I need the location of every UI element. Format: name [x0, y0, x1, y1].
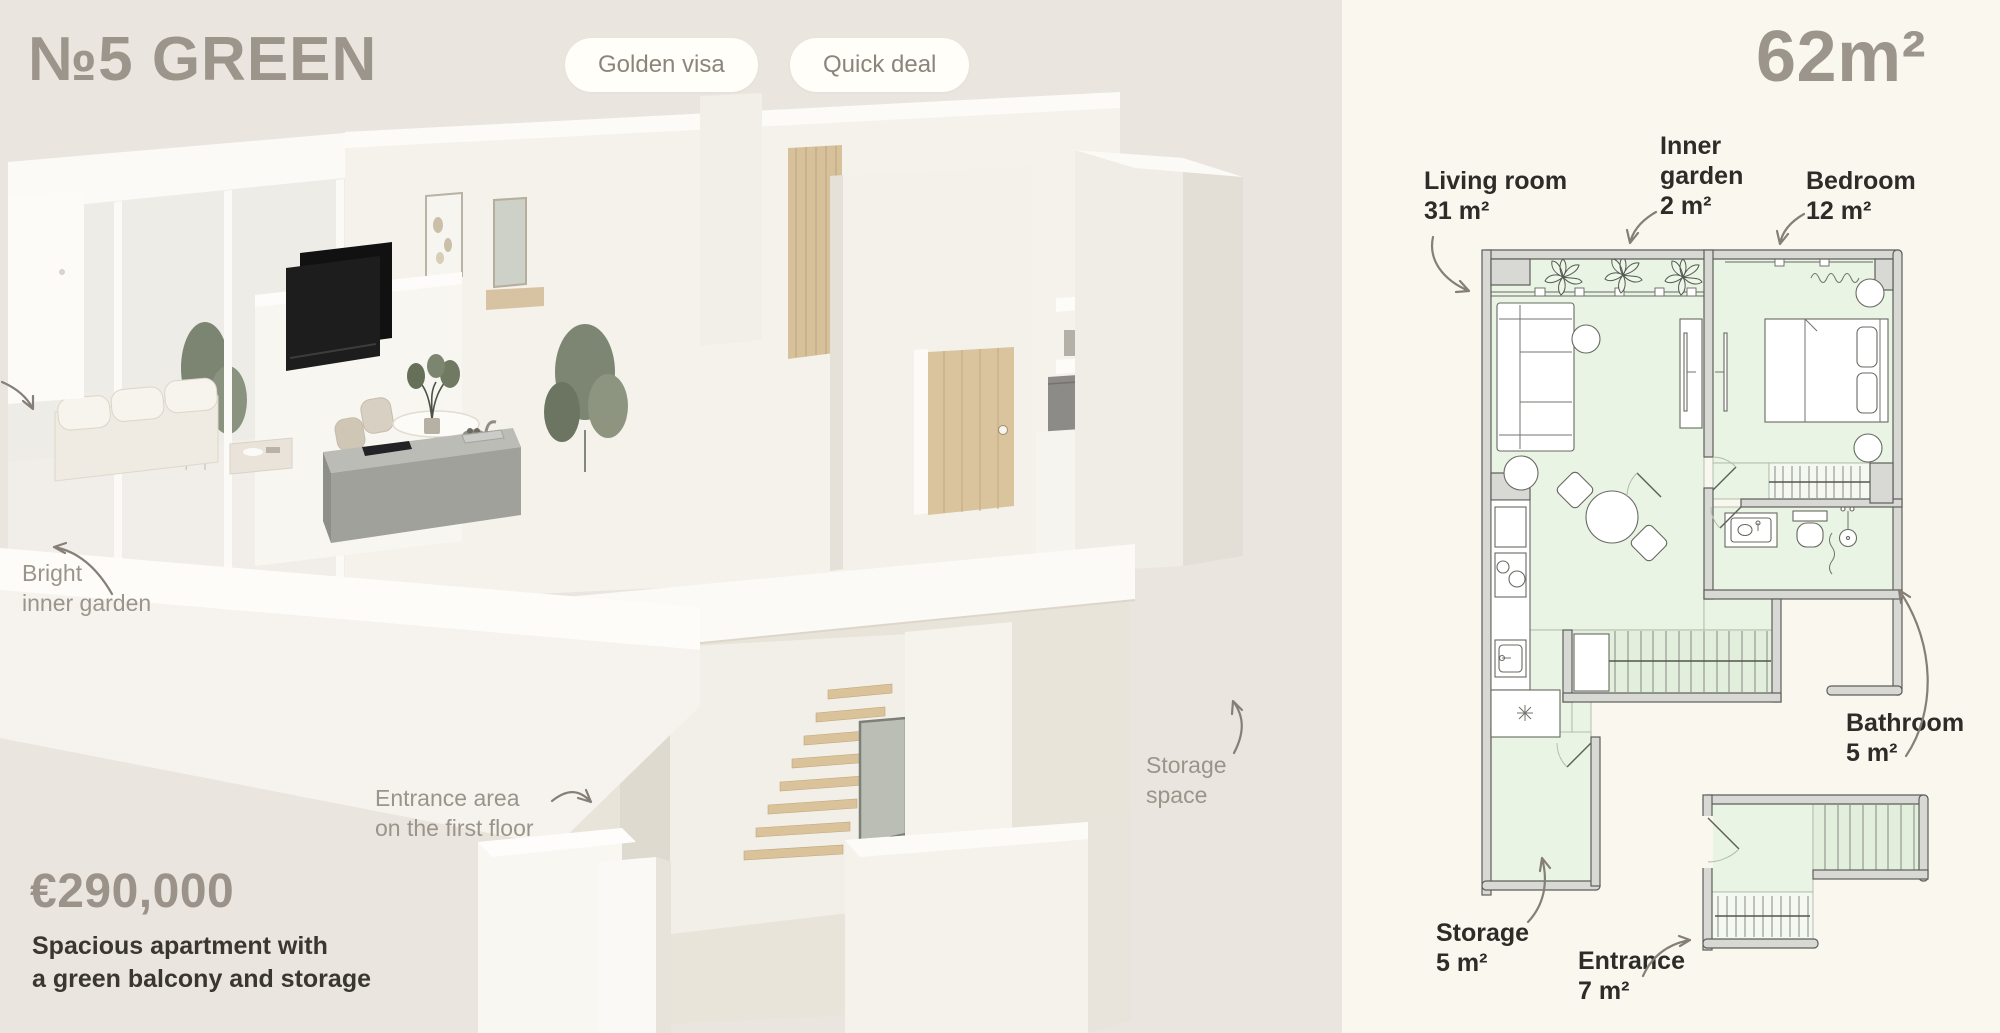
annotation-storage-space: Storage space — [1146, 750, 1227, 811]
total-area-label: 62m² — [1756, 16, 1926, 98]
room-label-storage: Storage 5 m² — [1436, 918, 1556, 978]
price: €290,000 — [30, 864, 234, 919]
room-label-inner-garden: Inner garden 2 m² — [1660, 131, 1778, 221]
listing-description: Spacious apartment with a green balcony … — [32, 930, 371, 995]
entrance-floor-plan — [1698, 792, 1933, 957]
room-label-bedroom: Bedroom 12 m² — [1806, 166, 1941, 226]
room-label-living-room: Living room 31 m² — [1424, 166, 1594, 226]
annotation-entrance-area: Entrance area on the first floor — [375, 783, 534, 844]
annotation-bright-inner-garden: Bright inner garden — [22, 558, 151, 619]
badge-quick-deal[interactable]: Quick deal — [790, 38, 969, 92]
page-title: №5 GREEN — [28, 24, 377, 95]
badge-golden-visa[interactable]: Golden visa — [565, 38, 758, 92]
